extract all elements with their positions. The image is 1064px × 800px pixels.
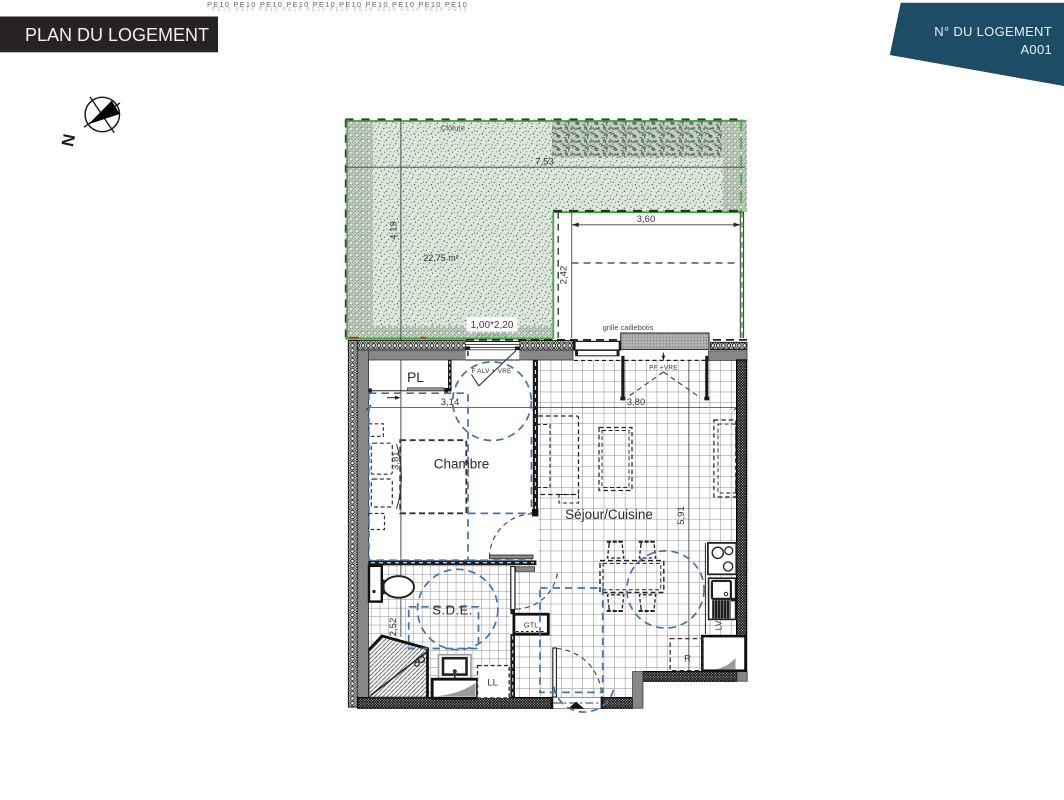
svg-text:22,75 m²: 22,75 m² <box>423 253 459 263</box>
svg-text:PF +VRE: PF +VRE <box>649 365 678 372</box>
svg-text:GTL: GTL <box>524 621 539 630</box>
svg-text:S.D.E.: S.D.E. <box>432 603 473 618</box>
svg-text:PE10 PE10 PE10 PE10 PE10 PE10: PE10 PE10 PE10 PE10 PE10 PE10 PE10 PE10 … <box>212 7 468 13</box>
svg-text:PLAN DU LOGEMENT: PLAN DU LOGEMENT <box>25 25 209 45</box>
svg-text:3,14: 3,14 <box>441 397 460 408</box>
svg-text:R: R <box>684 654 691 665</box>
svg-text:3,60: 3,60 <box>637 214 656 225</box>
svg-text:7,53: 7,53 <box>535 157 554 168</box>
svg-text:Chambre: Chambre <box>434 457 490 472</box>
svg-text:N° DU LOGEMENT: N° DU LOGEMENT <box>934 24 1052 39</box>
svg-text:LL: LL <box>487 678 498 689</box>
svg-text:3,80: 3,80 <box>627 397 646 408</box>
svg-text:A001: A001 <box>1020 42 1052 57</box>
svg-text:LV: LV <box>714 620 724 630</box>
svg-text:F ALV + VRE: F ALV + VRE <box>471 368 511 375</box>
svg-text:Clôture: Clôture <box>441 124 465 133</box>
svg-text:5,91: 5,91 <box>676 506 687 525</box>
svg-text:Séjour/Cuisine: Séjour/Cuisine <box>565 507 653 522</box>
svg-text:1,00*2,20: 1,00*2,20 <box>471 320 514 331</box>
svg-text:grille caillebotis: grille caillebotis <box>603 323 654 332</box>
svg-text:3,81: 3,81 <box>390 451 401 470</box>
svg-text:2,52: 2,52 <box>388 618 399 637</box>
svg-text:PL: PL <box>407 369 424 385</box>
svg-text:2,42: 2,42 <box>559 266 570 285</box>
svg-text:4,19: 4,19 <box>389 221 400 240</box>
svg-text:PE10 PE10: PE10 PE10 <box>477 334 507 340</box>
